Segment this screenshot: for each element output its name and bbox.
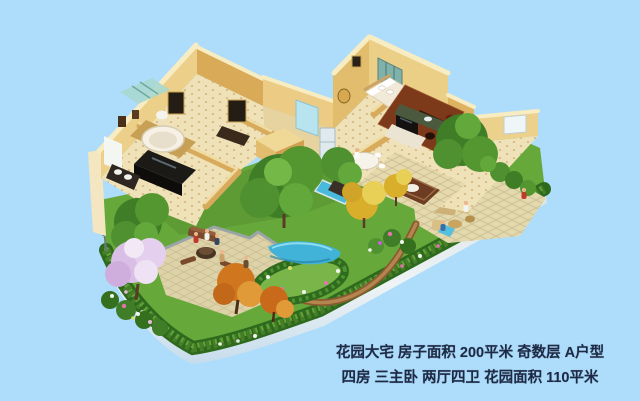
- mirror: [168, 92, 184, 114]
- picture-frame: [118, 116, 126, 127]
- person: [215, 234, 220, 245]
- caption: 花园大宅 房子面积 200平米 奇数层 A户型 四房 三主卧 两厅四卫 花园面积…: [318, 341, 622, 391]
- kitchen-sink: [424, 117, 432, 122]
- caption-line-1: 花园大宅 房子面积 200平米 奇数层 A户型: [318, 341, 622, 366]
- oval-art: [338, 89, 350, 103]
- study-chair: [425, 132, 435, 139]
- caption-line-2: 四房 三主卧 两厅四卫 花园面积 110平米: [318, 366, 622, 391]
- picture-frame: [352, 56, 361, 67]
- person: [244, 256, 249, 268]
- round-bathtub-inner: [149, 132, 177, 149]
- toilet: [156, 111, 168, 120]
- window-opening: [504, 115, 526, 134]
- person: [205, 229, 210, 240]
- person: [522, 188, 527, 199]
- poster: 花园大宅 房子面积 200平米 奇数层 A户型 四房 三主卧 两厅四卫 花园面积…: [0, 0, 640, 401]
- mirror: [228, 100, 246, 122]
- picture-frame: [132, 110, 139, 119]
- person: [194, 232, 199, 243]
- person: [355, 148, 360, 159]
- person: [220, 250, 225, 262]
- person: [464, 201, 469, 212]
- person: [441, 220, 446, 231]
